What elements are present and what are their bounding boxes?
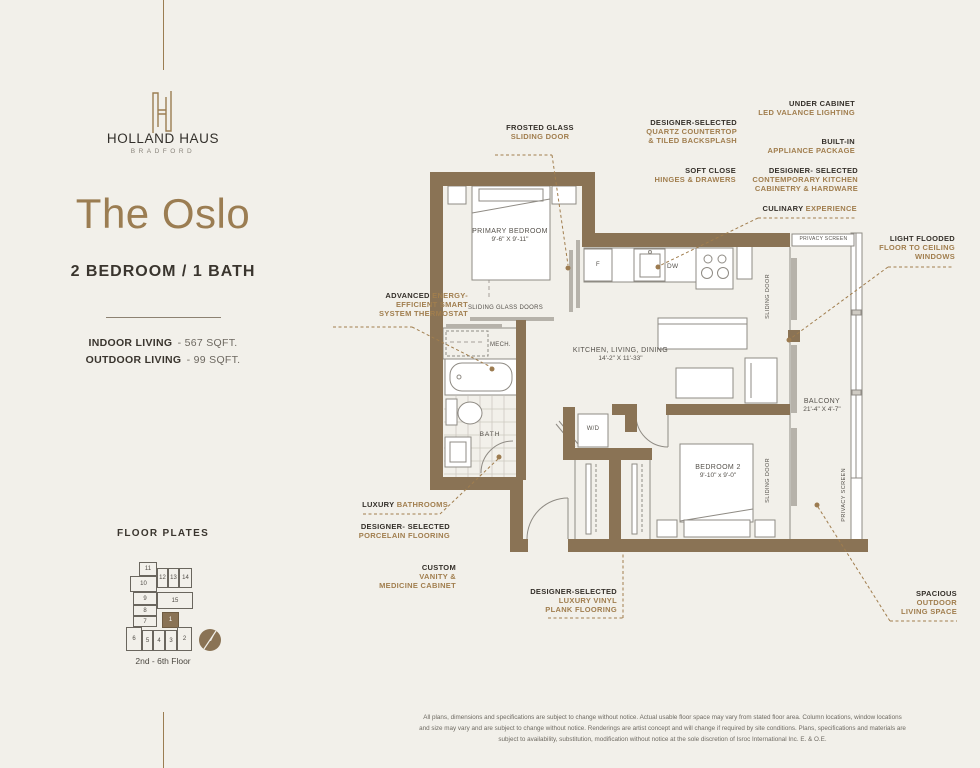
floor-plate-unit-6: 6 <box>126 627 142 651</box>
disclaimer: All plans, dimensions and specifications… <box>390 712 935 745</box>
floor-plate-unit-9: 9 <box>133 592 157 605</box>
callout-brown-text: LUXURY VINYL PLANK FLOORING <box>500 596 617 614</box>
floor-plate-unit-2: 2 <box>177 627 192 651</box>
room-name: KITCHEN, LIVING, DINING <box>548 347 693 354</box>
room-dims: 14'-2" X 11'-33" <box>548 355 693 362</box>
holland-haus-logo-icon <box>138 88 188 136</box>
callout-dark-text: LIGHT FLOODED <box>843 234 955 243</box>
room-dims: 9'-6" X 9'-11" <box>450 236 570 243</box>
bath-label: BATH <box>470 431 510 438</box>
floor-plate-unit-5: 5 <box>142 630 153 651</box>
callout-brown-text: PORCELAIN FLOORING <box>332 531 450 540</box>
callout-brown-text: EXPERIENCE <box>806 204 857 213</box>
callout-built-in-appliance: BUILT-IN APPLIANCE PACKAGE <box>735 137 855 155</box>
floor-plate-unit-11: 11 <box>139 562 157 576</box>
callout-kitchen-cabinetry: DESIGNER- SELECTED CONTEMPORARY KITCHEN … <box>728 166 858 193</box>
floor-plate-unit-4: 4 <box>153 630 165 651</box>
fridge-label: F <box>590 262 606 268</box>
mech-label: MECH. <box>490 342 511 348</box>
room-dims: 21'-4" X 4'-7" <box>789 406 855 413</box>
floor-plates-heading: FLOOR PLATES <box>20 528 306 539</box>
callout-porcelain-flooring: DESIGNER- SELECTED PORCELAIN FLOORING <box>332 522 450 540</box>
room-dims: 9'-10" x 9'-0" <box>678 472 758 479</box>
callout-brown-text: CONTEMPORARY KITCHEN CABINETRY & HARDWAR… <box>728 175 858 193</box>
callout-dark-text: ADVANCED <box>385 291 429 300</box>
callout-custom-vanity: CUSTOM VANITY & MEDICINE CABINET <box>340 563 456 590</box>
room-name: BEDROOM 2 <box>678 464 758 471</box>
floor-plate-unit-15: 15 <box>157 592 193 609</box>
callout-dark-text: DESIGNER- SELECTED <box>728 166 858 175</box>
sliding-door-upper-label: SLIDING DOOR <box>765 274 771 319</box>
bedroom-2-label: BEDROOM 2 9'-10" x 9'-0" <box>678 464 758 479</box>
callout-quartz-countertop: DESIGNER-SELECTED QUARTZ COUNTERTOP & TI… <box>625 118 737 145</box>
callout-culinary-experience: CULINARY EXPERIENCE <box>727 204 857 213</box>
bottom-rule <box>163 712 164 768</box>
brochure-page: HOLLAND HAUS BRADFORD The Oslo 2 BEDROOM… <box>0 0 980 768</box>
brand-location: BRADFORD <box>20 148 306 155</box>
callout-smart-thermostat: ADVANCED ENERGY- EFFICIENT SMART SYSTEM … <box>328 291 468 318</box>
callout-brown-text: APPLIANCE PACKAGE <box>735 146 855 155</box>
floor-plate-unit-8: 8 <box>133 605 157 616</box>
sliding-door-lower-label: SLIDING DOOR <box>765 458 771 503</box>
floor-plate-unit-10: 10 <box>130 576 157 592</box>
callout-dark-text: UNDER CABINET <box>725 99 855 108</box>
callout-dark-text: SOFT CLOSE <box>628 166 736 175</box>
callout-brown-text: QUARTZ COUNTERTOP & TILED BACKSPLASH <box>625 127 737 145</box>
callout-brown-text: HINGES & DRAWERS <box>628 175 736 184</box>
disclaimer-line-1: All plans, dimensions and specifications… <box>390 712 935 723</box>
callout-soft-close: SOFT CLOSE HINGES & DRAWERS <box>628 166 736 184</box>
floor-plate-unit-12: 12 <box>157 568 168 588</box>
kitchen-living-dining-label: KITCHEN, LIVING, DINING 14'-2" X 11'-33" <box>548 347 693 362</box>
callout-brown-text: BATHROOMS <box>397 500 448 509</box>
sliding-glass-doors-label: SLIDING GLASS DOORS <box>458 305 553 311</box>
callout-brown-text: LED VALANCE LIGHTING <box>725 108 855 117</box>
callout-vinyl-plank-flooring: DESIGNER-SELECTED LUXURY VINYL PLANK FLO… <box>500 587 617 614</box>
outdoor-living-value: - 99 SQFT. <box>187 354 241 366</box>
floor-plate-unit-14: 14 <box>179 568 192 588</box>
callout-brown-text: FLOOR TO CEILING WINDOWS <box>843 243 955 261</box>
indoor-living-value: - 567 SQFT. <box>178 337 238 349</box>
indoor-living-label: INDOOR LIVING <box>89 337 173 349</box>
privacy-screen-right-label: PRIVACY SCREEN <box>841 468 847 522</box>
callout-dark-text: DESIGNER-SELECTED <box>500 587 617 596</box>
callout-dark-text: CUSTOM <box>340 563 456 572</box>
callout-dark-text: DESIGNER-SELECTED <box>625 118 737 127</box>
callout-frosted-glass: FROSTED GLASS SLIDING DOOR <box>480 123 600 141</box>
disclaimer-line-2: and size may vary and are subject to cha… <box>390 723 935 734</box>
brand-name: HOLLAND HAUS <box>20 131 306 146</box>
callout-dark-text: DESIGNER- SELECTED <box>332 522 450 531</box>
callout-brown-text: VANITY & MEDICINE CABINET <box>340 572 456 590</box>
primary-bedroom-label: PRIMARY BEDROOM 9'-6" X 9'-11" <box>450 228 570 243</box>
top-rule <box>163 0 164 70</box>
callout-under-cabinet: UNDER CABINET LED VALANCE LIGHTING <box>725 99 855 117</box>
callout-luxury-bathrooms: LUXURY BATHROOMS <box>340 500 448 509</box>
unit-layout: 2 BEDROOM / 1 BATH <box>20 263 306 281</box>
compass-icon <box>198 628 222 652</box>
callout-light-flooded-windows: LIGHT FLOODED FLOOR TO CEILING WINDOWS <box>843 234 955 261</box>
page-title: The Oslo <box>20 190 306 238</box>
floor-plate-caption: 2nd - 6th Floor <box>20 656 306 666</box>
outdoor-living-label: OUTDOOR LIVING <box>86 354 182 366</box>
sidebar-divider <box>106 317 221 318</box>
floor-plate-unit-3: 3 <box>165 630 177 651</box>
callout-dark-text: CULINARY <box>763 204 804 213</box>
callout-dark-text: SPACIOUS <box>850 589 957 598</box>
room-name: PRIMARY BEDROOM <box>450 228 570 235</box>
floor-plate-unit-1-highlighted: 1 <box>162 612 179 628</box>
room-name: BALCONY <box>789 398 855 405</box>
disclaimer-line-3: subject to availability, substitution, m… <box>390 734 935 745</box>
indoor-living-line: INDOOR LIVING - 567 SQFT. <box>20 337 306 349</box>
floor-plate-map: 11 12 13 14 10 9 8 7 15 1 6 5 4 3 2 <box>125 560 200 655</box>
floor-plate-unit-13: 13 <box>168 568 179 588</box>
washer-dryer-label: W/D <box>578 426 608 432</box>
callout-brown-text: OUTDOOR LIVING SPACE <box>850 598 957 616</box>
callout-dark-text: FROSTED GLASS <box>480 123 600 132</box>
dishwasher-label: DW <box>667 263 678 270</box>
callout-dark-text: BUILT-IN <box>735 137 855 146</box>
callout-brown-text: SLIDING DOOR <box>480 132 600 141</box>
balcony-label: BALCONY 21'-4" X 4'-7" <box>789 398 855 413</box>
callout-dark-text: LUXURY <box>362 500 394 509</box>
floor-plate-unit-7: 7 <box>133 616 157 627</box>
outdoor-living-line: OUTDOOR LIVING - 99 SQFT. <box>20 354 306 366</box>
callout-spacious-outdoor: SPACIOUS OUTDOOR LIVING SPACE <box>850 589 957 616</box>
